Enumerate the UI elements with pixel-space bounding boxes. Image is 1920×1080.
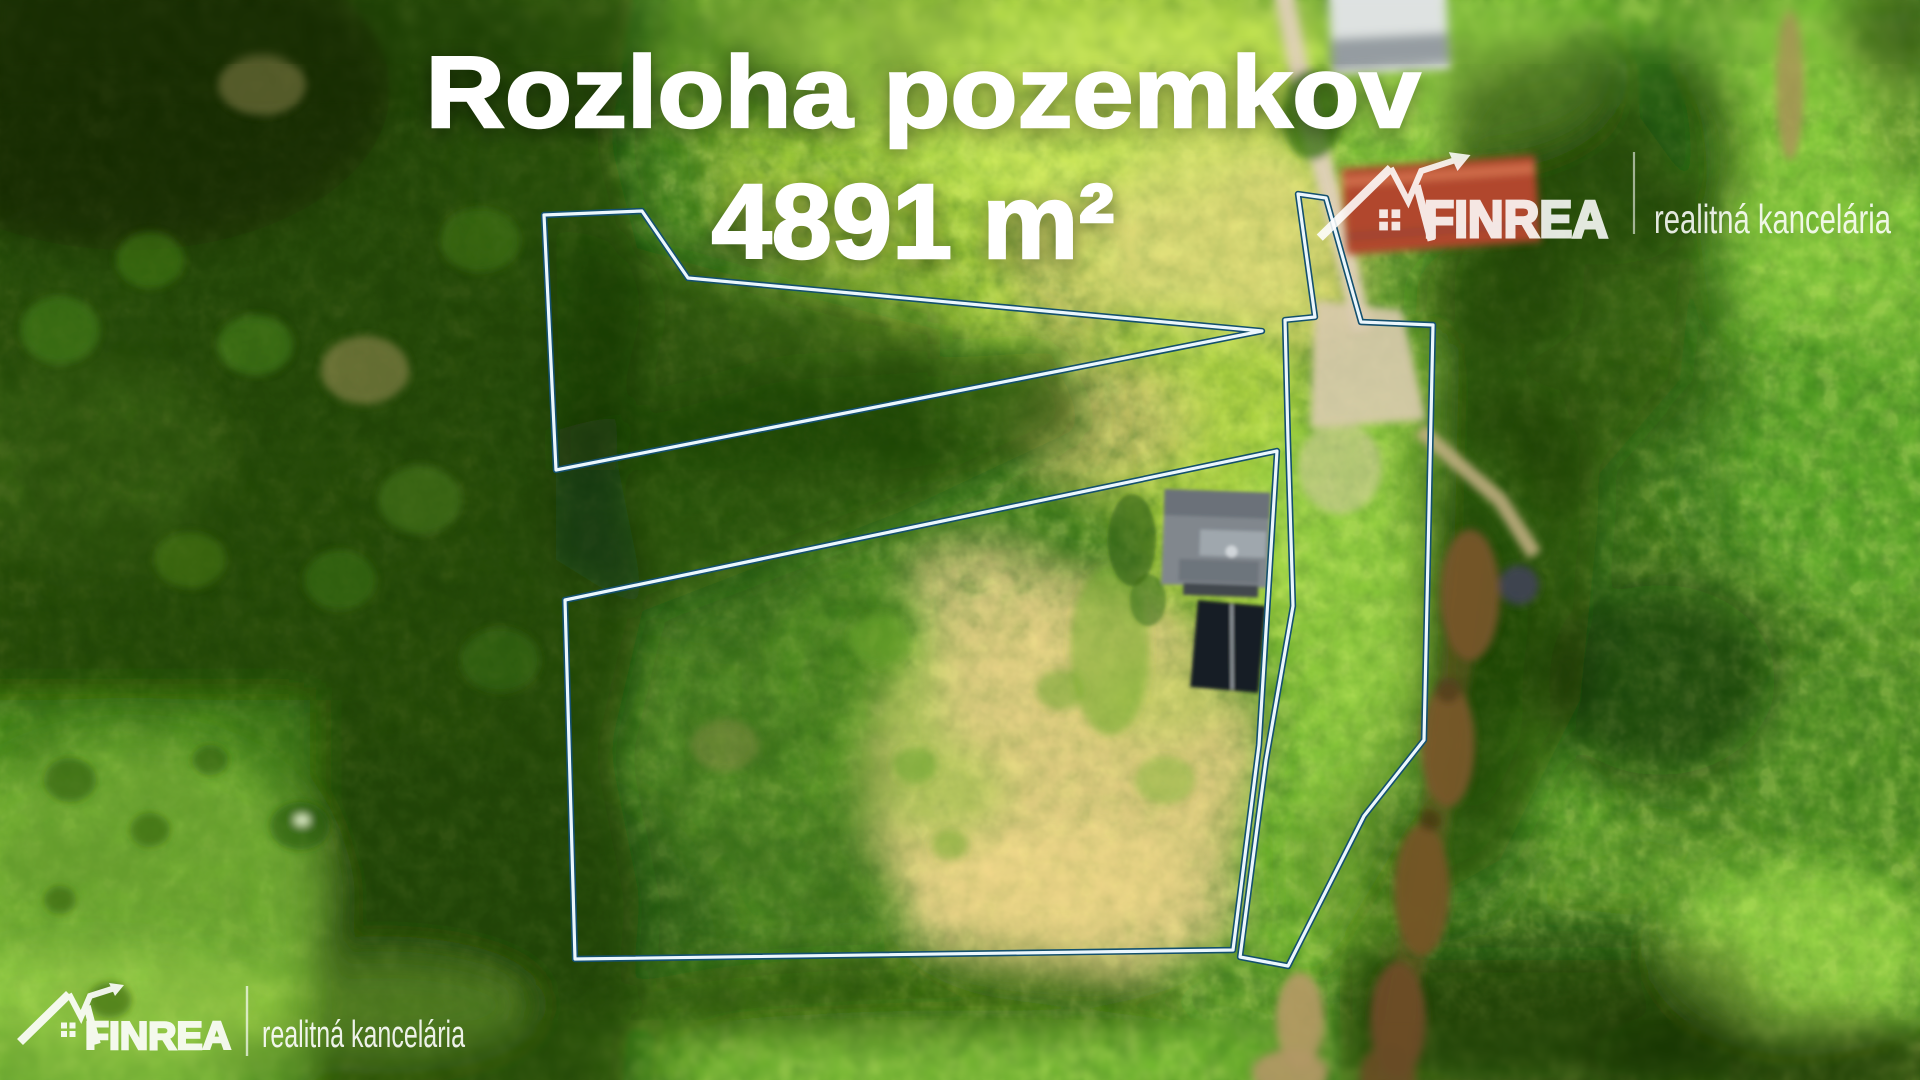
svg-text:realitná kancelária: realitná kancelária [262,1014,466,1056]
svg-text:FINREA: FINREA [1424,191,1608,249]
svg-text:realitná kancelária: realitná kancelária [1654,196,1891,242]
svg-text:FINREA: FINREA [85,1015,231,1058]
svg-text:Rozloha pozemkov: Rozloha pozemkov [426,37,1421,149]
svg-text:4891 m²: 4891 m² [712,163,1115,281]
